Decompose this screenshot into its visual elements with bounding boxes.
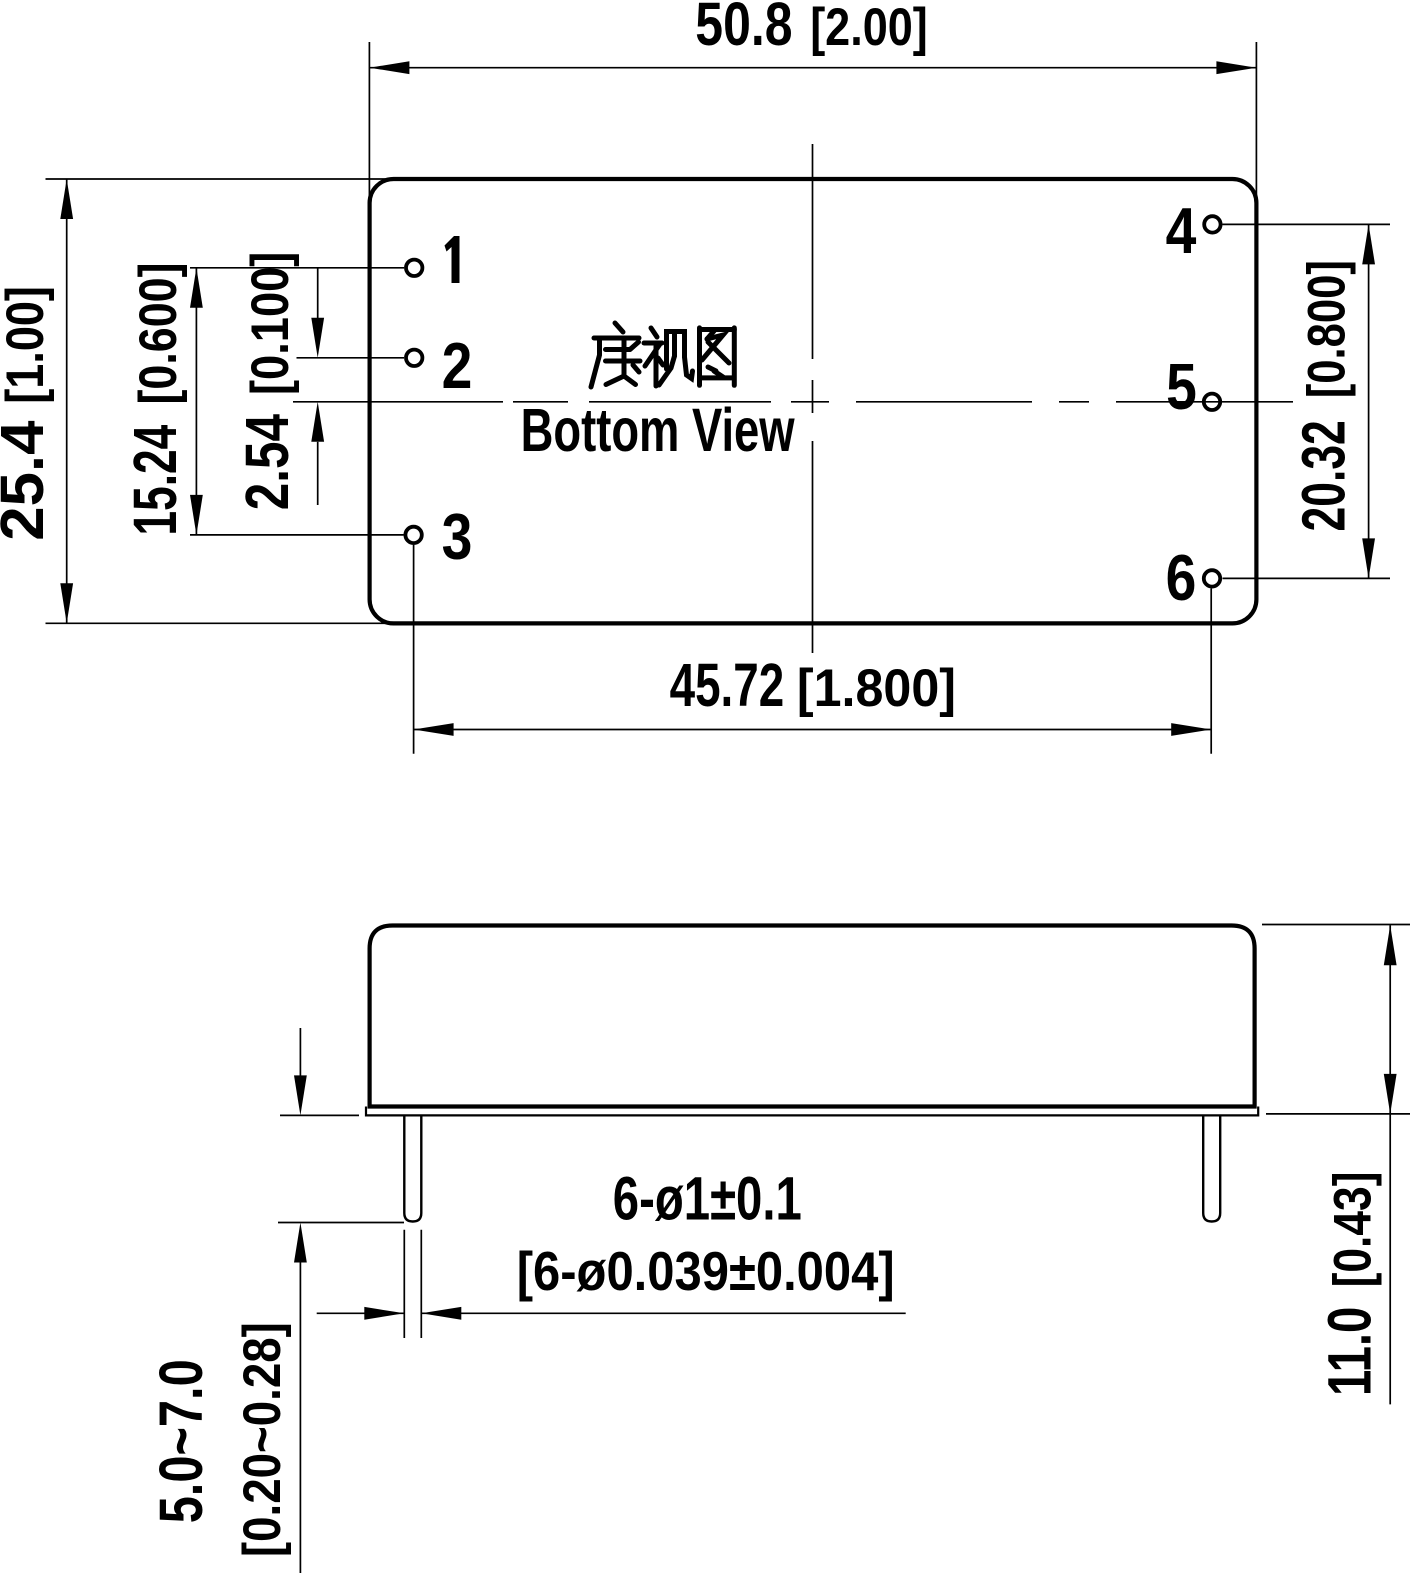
svg-text:[2.00]: [2.00]: [810, 0, 928, 57]
svg-text:[0.100]: [0.100]: [241, 252, 300, 395]
svg-text:[0.800]: [0.800]: [1298, 260, 1357, 398]
svg-text:[0.20~0.28]: [0.20~0.28]: [233, 1322, 292, 1557]
svg-text:2: 2: [442, 329, 473, 402]
svg-text:25.4: 25.4: [0, 421, 56, 541]
svg-text:[0.43]: [0.43]: [1323, 1172, 1382, 1288]
svg-text:20.32: 20.32: [1290, 420, 1358, 531]
svg-text:45.72: 45.72: [670, 651, 785, 719]
svg-text:15.24: 15.24: [121, 425, 189, 536]
svg-text:[1.800]: [1.800]: [797, 659, 956, 718]
svg-text:50.8: 50.8: [695, 0, 792, 58]
svg-text:6: 6: [1166, 541, 1197, 614]
svg-text:5: 5: [1166, 350, 1197, 423]
svg-text:5.0~7.0: 5.0~7.0: [147, 1359, 215, 1523]
svg-text:11.0: 11.0: [1315, 1307, 1383, 1396]
svg-text:[6-ø0.039±0.004]: [6-ø0.039±0.004]: [517, 1240, 895, 1302]
svg-text:Bottom View: Bottom View: [521, 396, 795, 464]
svg-text:3: 3: [442, 500, 473, 573]
svg-text:2.54: 2.54: [233, 414, 301, 510]
svg-text:6-ø1±0.1: 6-ø1±0.1: [613, 1164, 802, 1232]
svg-text:[0.600]: [0.600]: [129, 263, 188, 405]
svg-text:[1.00]: [1.00]: [0, 286, 55, 404]
svg-text:4: 4: [1166, 194, 1197, 267]
